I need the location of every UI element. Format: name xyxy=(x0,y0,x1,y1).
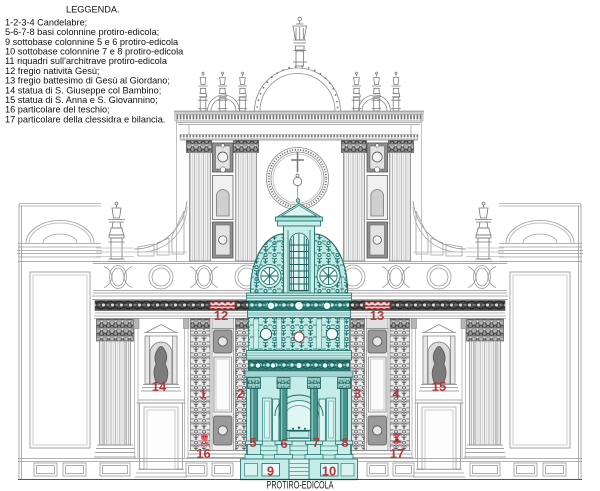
svg-text:8: 8 xyxy=(341,435,348,450)
svg-text:13: 13 xyxy=(370,308,384,323)
svg-text:14 statua di S. Giuseppe col B: 14 statua di S. Giuseppe col Bambino; xyxy=(5,85,161,95)
svg-text:1: 1 xyxy=(199,387,206,402)
svg-text:17 particolare della clessidra: 17 particolare della clessidra e bilanci… xyxy=(5,114,165,124)
svg-text:10 sottobase colonnine 7 e 8 p: 10 sottobase colonnine 7 e 8 protiro-edi… xyxy=(5,47,184,57)
svg-text:2: 2 xyxy=(237,386,244,401)
svg-text:15: 15 xyxy=(432,379,446,394)
svg-text:4: 4 xyxy=(392,386,400,401)
svg-text:11 riquadri sull'architrave pr: 11 riquadri sull'architrave protiro-edic… xyxy=(5,56,168,66)
svg-text:5: 5 xyxy=(249,435,256,450)
svg-text:9 sottobase colonnine 5 e 6 p: 9 sottobase colonnine 5 e 6 protiro-edic… xyxy=(5,37,179,47)
svg-text:7: 7 xyxy=(312,435,319,450)
svg-text:17: 17 xyxy=(390,446,404,461)
svg-text:12: 12 xyxy=(214,308,228,323)
svg-text:13 fregio battesimo di Gesù al: 13 fregio battesimo di Gesù al Giordano; xyxy=(5,76,170,86)
svg-text:6: 6 xyxy=(280,436,287,451)
svg-text:5-6-7-8 basi colonnine protiro: 5-6-7-8 basi colonnine protiro-edicola; xyxy=(5,27,159,37)
svg-text:14: 14 xyxy=(152,379,167,394)
svg-text:16 particolare del teschio;: 16 particolare del teschio; xyxy=(5,105,110,115)
svg-text:12 fregio natività Gesù;: 12 fregio natività Gesù; xyxy=(5,66,99,76)
svg-text:PROTIRO-EDICOLA: PROTIRO-EDICOLA xyxy=(267,480,334,491)
svg-text:3: 3 xyxy=(354,386,361,401)
svg-text:9: 9 xyxy=(267,464,274,479)
svg-text:LEGGENDA.: LEGGENDA. xyxy=(66,5,120,15)
svg-text:16: 16 xyxy=(196,446,210,461)
svg-text:1-2-3-4 Candelabre;: 1-2-3-4 Candelabre; xyxy=(5,17,87,27)
svg-text:15 statua di S. Anna e S. Giov: 15 statua di S. Anna e S. Giovannino; xyxy=(5,95,158,105)
svg-text:10: 10 xyxy=(322,464,336,479)
